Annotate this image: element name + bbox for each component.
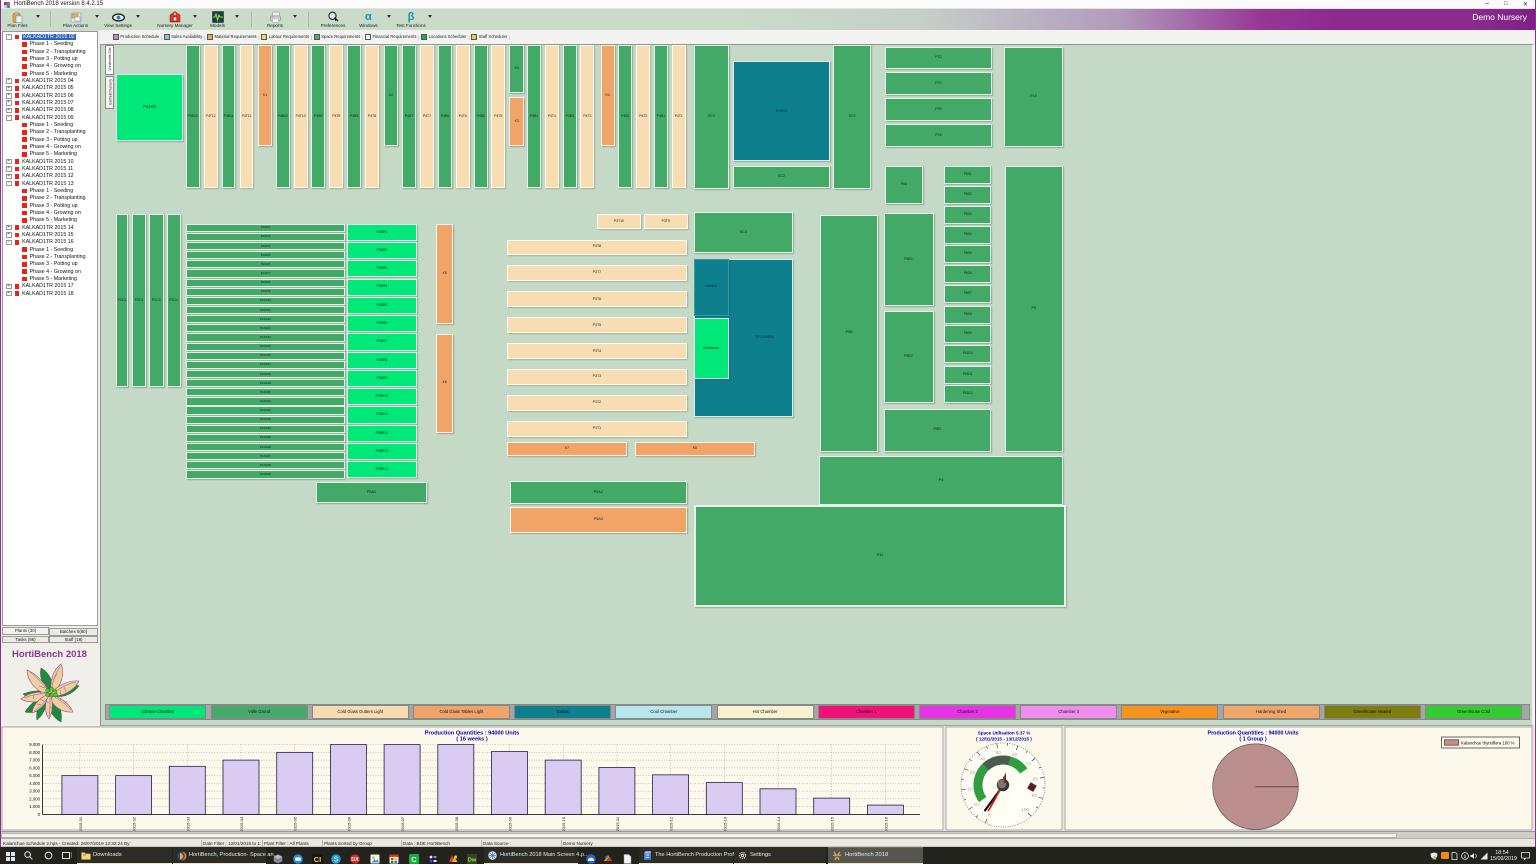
svg-text:2015-16: 2015-16 — [883, 816, 888, 831]
svg-text:80: 80 — [1033, 777, 1039, 783]
svg-text:40: 40 — [980, 757, 986, 763]
svg-text:1.000: 1.000 — [29, 804, 40, 809]
svg-text:2015-07: 2015-07 — [400, 816, 405, 831]
svg-text:2015-15: 2015-15 — [830, 816, 835, 831]
svg-text:2015-05: 2015-05 — [293, 816, 298, 831]
svg-text:Kalanchoe thyrsiflora 100 %: Kalanchoe thyrsiflora 100 % — [1461, 740, 1515, 745]
svg-text:20: 20 — [968, 786, 974, 792]
svg-text:50: 50 — [995, 750, 1001, 756]
svg-text:9.000: 9.000 — [29, 742, 40, 747]
svg-text:4.000: 4.000 — [29, 781, 40, 786]
svg-text:2015-01: 2015-01 — [78, 816, 83, 831]
svg-text:Space Utilisation 5.37 %: Space Utilisation 5.37 % — [978, 731, 1031, 736]
svg-text:2015-12: 2015-12 — [669, 816, 674, 831]
svg-text:2015-03: 2015-03 — [185, 816, 190, 831]
svg-text:2015-06: 2015-06 — [346, 816, 351, 831]
svg-text:60: 60 — [1012, 752, 1018, 758]
svg-text:7.000: 7.000 — [29, 758, 40, 763]
svg-text:S: S — [334, 856, 339, 863]
svg-text:( 16 weeks ): ( 16 weeks ) — [456, 737, 488, 743]
svg-text:3.000: 3.000 — [29, 789, 40, 794]
svg-text:2015-04: 2015-04 — [239, 816, 244, 831]
svg-text:10: 10 — [974, 802, 980, 808]
svg-text:2015-14: 2015-14 — [776, 816, 781, 831]
svg-text:100: 100 — [1021, 807, 1029, 813]
svg-text:5.000: 5.000 — [29, 773, 40, 778]
svg-text:2015-13: 2015-13 — [722, 816, 727, 831]
svg-text:70: 70 — [1026, 761, 1032, 767]
svg-text:2015-08: 2015-08 — [454, 816, 459, 831]
svg-text:8.000: 8.000 — [29, 750, 40, 755]
svg-text:Dw: Dw — [468, 857, 477, 863]
svg-text:C: C — [411, 854, 417, 863]
svg-text:0: 0 — [988, 813, 991, 819]
svg-text:( 1 Group ): ( 1 Group ) — [1239, 737, 1266, 743]
svg-text:( 12/01/2015 - 13/12/2015 ): ( 12/01/2015 - 13/12/2015 ) — [976, 737, 1032, 742]
svg-text:30: 30 — [970, 770, 976, 776]
svg-text:2015-10: 2015-10 — [561, 816, 566, 831]
svg-text:2015-02: 2015-02 — [132, 816, 137, 831]
svg-text:DX: DX — [351, 857, 359, 863]
svg-text:2015-11: 2015-11 — [615, 816, 620, 831]
svg-text:90: 90 — [1032, 793, 1038, 799]
svg-text:CI: CI — [313, 854, 321, 863]
svg-text:2015-09: 2015-09 — [508, 816, 513, 831]
svg-text:6.000: 6.000 — [29, 765, 40, 770]
svg-text:2.000: 2.000 — [29, 796, 40, 801]
svg-text:b: b — [1464, 854, 1467, 859]
